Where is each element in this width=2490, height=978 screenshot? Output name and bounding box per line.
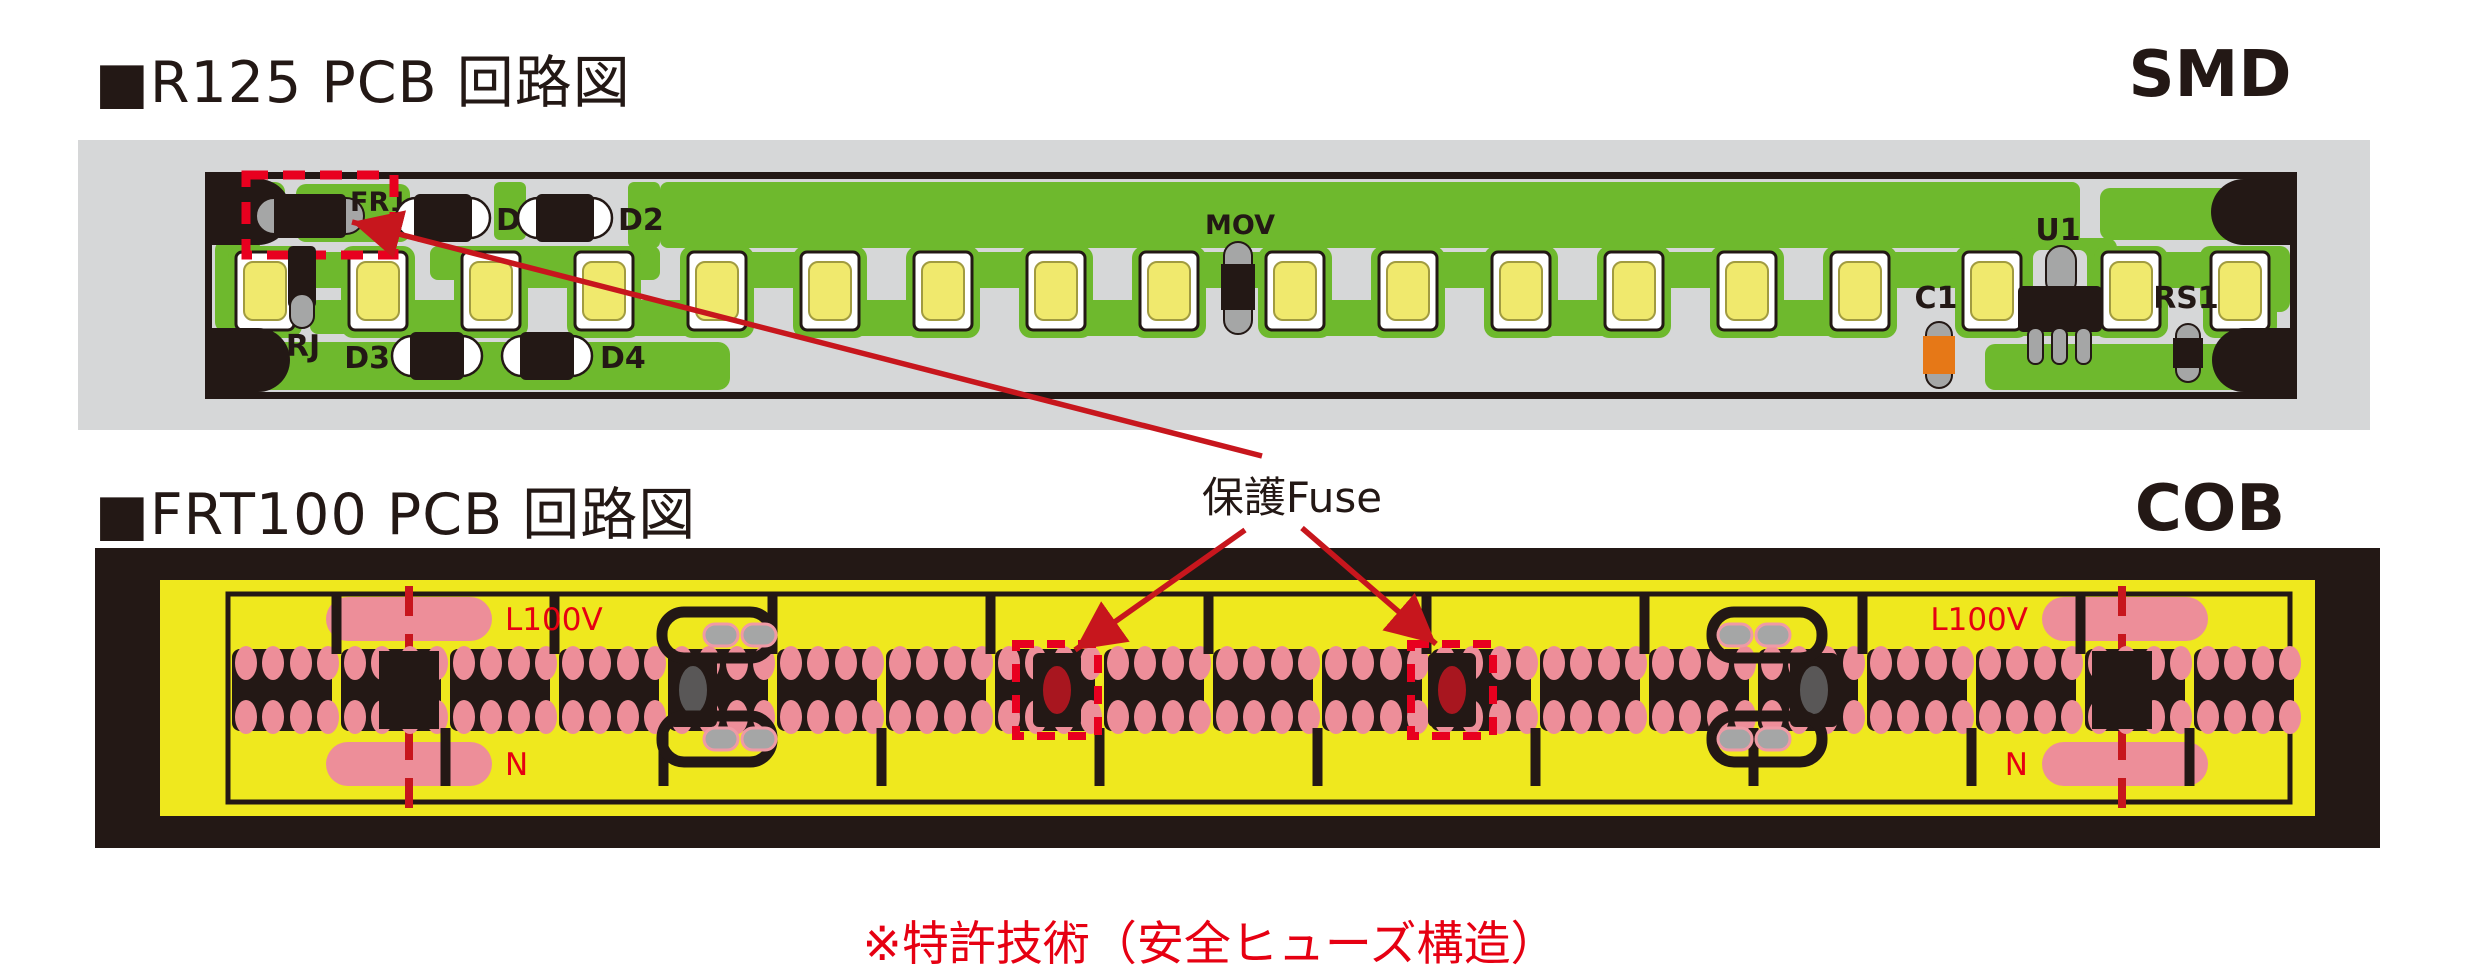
cob-band-stub (332, 596, 342, 654)
cob-pad-dot (1380, 646, 1402, 680)
cob-pad-dot (1652, 646, 1674, 680)
cob-pad-dot (916, 700, 938, 734)
cob-pad-dot (317, 700, 339, 734)
rj-label: RJ (286, 329, 320, 364)
cob-band-stub (1313, 728, 1323, 786)
d2-label: D2 (618, 203, 664, 238)
cob-band-stub (877, 728, 887, 786)
smd-type-label: SMD (2129, 38, 2292, 112)
smd-led-chip (470, 262, 512, 320)
cob-board: L100V N L100V N (95, 548, 2380, 848)
cob-pad-dot (1925, 646, 1947, 680)
cob-junction-square (2092, 651, 2152, 729)
cob-pad-dot (1570, 700, 1592, 734)
cob-pad-dot (2279, 700, 2301, 734)
smd-led-chip (2110, 262, 2152, 320)
smd-led-chip (1971, 262, 2013, 320)
pcb-diagram: FR1 D1 D2 RJ D3 D4 (0, 0, 2490, 978)
cob-pad-dot (480, 646, 502, 680)
cob-pad-dot (344, 646, 366, 680)
cob-pad-dot (2034, 700, 2056, 734)
cob-pad-dot (1325, 646, 1347, 680)
cob-pad-dot (480, 700, 502, 734)
cob-band-stub (441, 728, 451, 786)
cob-section-title: ■FRT100 PCB 回路図 (95, 482, 696, 548)
cob-pad-dot (1216, 646, 1238, 680)
cob-pad-dot (2034, 646, 2056, 680)
smd-board: FR1 D1 D2 RJ D3 D4 (78, 140, 2370, 430)
jumper-contact (742, 728, 776, 750)
cob-pad-dot (780, 646, 802, 680)
corner-pad (2211, 179, 2290, 245)
smd-led-chip (244, 262, 286, 320)
cob-pad-dot (944, 646, 966, 680)
smd-led-chip (1148, 262, 1190, 320)
cob-pad-dot (1134, 646, 1156, 680)
cob-pad-dot (1216, 700, 1238, 734)
cob-pad-dot (916, 646, 938, 680)
cob-band-stub (1204, 596, 1214, 654)
cob-pad-dot (617, 700, 639, 734)
cob-band-stub (1967, 728, 1977, 786)
cob-pad-dot (1543, 700, 1565, 734)
jumper-contact (1718, 728, 1752, 750)
c1-label: C1 (1915, 281, 1958, 316)
cob-pad-dot (2197, 646, 2219, 680)
cob-pad-dot (889, 646, 911, 680)
cob-pad-dot (1652, 700, 1674, 734)
cob-pad-dot (2006, 646, 2028, 680)
cob-pad-dot (589, 700, 611, 734)
cob-pad-dot (453, 646, 475, 680)
cob-pad-dot (262, 700, 284, 734)
figure-canvas: FR1 D1 D2 RJ D3 D4 (0, 0, 2490, 978)
cob-pad-dot (617, 646, 639, 680)
cob-pad-dot (1298, 646, 1320, 680)
smd-led-chip (2219, 262, 2261, 320)
cob-pad-dot (1243, 646, 1265, 680)
patent-note: ※特許技術（安全ヒューズ構造） (862, 917, 1557, 972)
cob-pad-dot (290, 646, 312, 680)
cob-pad-dot (807, 700, 829, 734)
smd-led-chip (1613, 262, 1655, 320)
smd-led-chip (1500, 262, 1542, 320)
jumper-contact (1756, 624, 1790, 646)
cob-pad-dot (971, 700, 993, 734)
cob-pad-dot (235, 700, 257, 734)
l100v-label-right: L100V (1930, 602, 2028, 638)
cob-pad-dot (589, 646, 611, 680)
cob-pad-dot (2252, 646, 2274, 680)
cob-pad-dot (835, 700, 857, 734)
cob-pad-dot (1243, 700, 1265, 734)
cob-pad-dot (1625, 700, 1647, 734)
jumper-contact (742, 624, 776, 646)
fuse-annotation-label: 保護Fuse (1202, 473, 1382, 522)
u1-label: U1 (2035, 213, 2080, 248)
mov-label: MOV (1205, 210, 1275, 241)
smd-led-chip (1839, 262, 1881, 320)
cob-pad-dot (1897, 700, 1919, 734)
corner-pad (212, 328, 290, 392)
cob-pad-dot (780, 700, 802, 734)
cob-pad-dot (1979, 646, 2001, 680)
cob-pad-dot (1107, 646, 1129, 680)
cob-pad-dot (1189, 700, 1211, 734)
cob-pad-dot (262, 646, 284, 680)
cob-type-label: COB (2135, 472, 2285, 546)
cob-pad-dot (1679, 646, 1701, 680)
cob-pad-dot (835, 646, 857, 680)
cob-pad-dot (453, 700, 475, 734)
rs1-label: RS1 (2153, 281, 2219, 316)
smd-led-chip (1387, 262, 1429, 320)
n-label-right: N (2005, 747, 2028, 783)
cob-pad-dot (2006, 700, 2028, 734)
smd-led-chip (1726, 262, 1768, 320)
cob-pad-dot (2170, 646, 2192, 680)
cob-pad-dot (1679, 700, 1701, 734)
cob-pad-dot (1352, 700, 1374, 734)
cob-band-stub (986, 596, 996, 654)
cob-pad-dot (2252, 700, 2274, 734)
cob-pad-dot (1897, 646, 1919, 680)
cob-pad-dot (344, 700, 366, 734)
jumper-contact (704, 728, 738, 750)
smd-led-chip (1274, 262, 1316, 320)
cob-pad-dot (562, 646, 584, 680)
cob-pad-dot (508, 700, 530, 734)
l100v-label-left: L100V (505, 602, 603, 638)
cob-pad-dot (1352, 646, 1374, 680)
cob-pad-dot (1380, 700, 1402, 734)
jumper-contact (704, 624, 738, 646)
cob-pad-dot (290, 700, 312, 734)
cob-pad-dot (2224, 700, 2246, 734)
n-label-left: N (505, 747, 528, 783)
cob-pad-dot (889, 700, 911, 734)
cob-band-stub (2076, 596, 2086, 654)
cob-pad-dot (1570, 646, 1592, 680)
cob-pad-dot (1925, 700, 1947, 734)
smd-led-chip (1035, 262, 1077, 320)
cob-band-stub (1640, 596, 1650, 654)
d3-label: D3 (344, 341, 390, 376)
cob-pad-dot (1870, 700, 1892, 734)
cob-pad-dot (2224, 646, 2246, 680)
cob-pad-dot (2279, 646, 2301, 680)
cob-pad-dot (1870, 646, 1892, 680)
cob-pad-dot (1979, 700, 2001, 734)
cob-pad-dot (535, 700, 557, 734)
cob-pad-dot (1162, 646, 1184, 680)
cob-pad-dot (235, 646, 257, 680)
cob-protection-fuse (1042, 665, 1072, 715)
cob-pad-dot (1107, 700, 1129, 734)
cob-band-stub (1095, 728, 1105, 786)
jumper-contact (1756, 728, 1790, 750)
cob-protection-fuse (1437, 665, 1467, 715)
smd-led-chip (809, 262, 851, 320)
corner-pad (2212, 328, 2290, 392)
cob-pad-dot (1543, 646, 1565, 680)
cob-pad-dot (1843, 700, 1865, 734)
cob-pad-dot (1598, 700, 1620, 734)
cob-band-stub (1531, 728, 1541, 786)
cob-pad-dot (508, 646, 530, 680)
cob-pad-dot (807, 646, 829, 680)
cob-pad-dot (2197, 700, 2219, 734)
cob-pad-dot (1271, 700, 1293, 734)
cob-pad-dot (1162, 700, 1184, 734)
cob-pad-dot (1325, 700, 1347, 734)
cob-pad-dot (1134, 700, 1156, 734)
cob-fuse (678, 665, 708, 715)
cob-pad-dot (862, 646, 884, 680)
component-rj: RJ (286, 246, 320, 364)
smd-led-chip (357, 262, 399, 320)
cob-junction-square (379, 651, 439, 729)
cob-pad-dot (2061, 700, 2083, 734)
cob-band-stub (2185, 728, 2195, 786)
cob-pad-dot (1952, 646, 1974, 680)
cob-band-stub (1858, 596, 1868, 654)
cob-pad-dot (1598, 646, 1620, 680)
d4-label: D4 (600, 341, 646, 376)
cob-pad-dot (944, 700, 966, 734)
cob-pad-dot (1516, 646, 1538, 680)
smd-led-chip (922, 262, 964, 320)
smd-section-title: ■R125 PCB 回路図 (95, 50, 631, 116)
cob-pad-dot (1271, 646, 1293, 680)
cob-pad-dot (562, 700, 584, 734)
cob-fuse (1799, 665, 1829, 715)
jumper-contact (1718, 624, 1752, 646)
